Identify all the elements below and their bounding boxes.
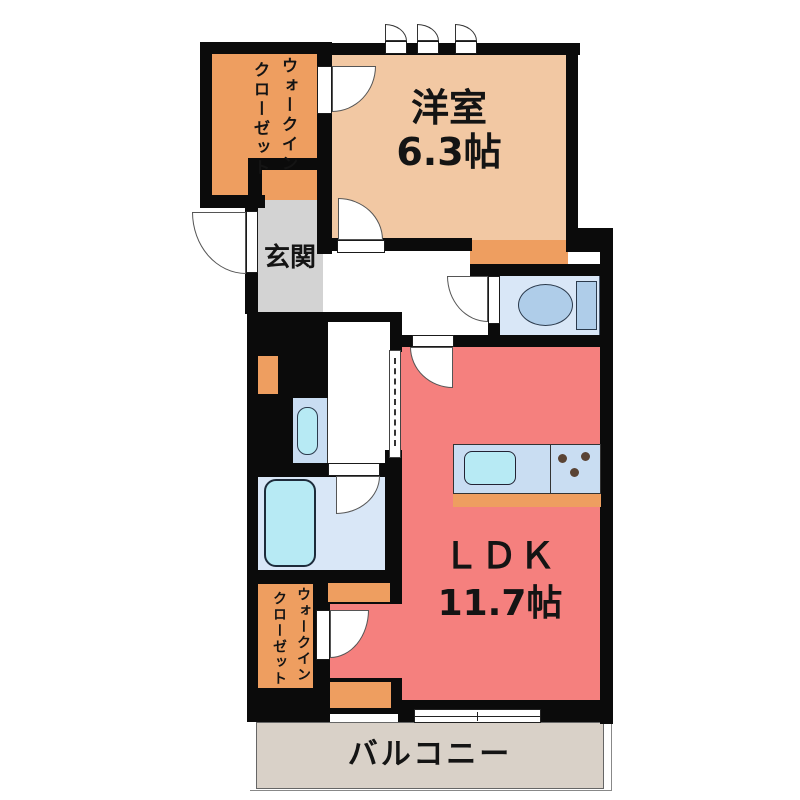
door-leaf xyxy=(488,276,500,324)
stove-burner-icon xyxy=(558,454,567,463)
window-frame xyxy=(417,41,439,54)
wall xyxy=(245,272,258,314)
sliding-door-icon xyxy=(389,350,401,458)
walk-in-closet-bottom-label-col2: クローゼット xyxy=(269,591,289,687)
ldk-closet-strip-lower xyxy=(330,682,391,708)
wall xyxy=(320,43,580,55)
window-frame xyxy=(385,41,407,54)
toilet-tank-icon xyxy=(576,281,597,330)
window-icon xyxy=(385,24,407,41)
wall xyxy=(200,42,212,208)
bathtub-icon xyxy=(264,479,316,567)
wall xyxy=(247,688,330,722)
window-icon xyxy=(417,24,439,41)
walk-in-closet-top-label-col2: クローゼット xyxy=(248,61,272,178)
entrance-label: 玄関 xyxy=(256,243,324,274)
sliding-door-track xyxy=(394,358,396,446)
western-room-label: 洋室 6.3帖 xyxy=(330,86,568,174)
ldk-name: ＬＤＫ xyxy=(400,533,600,580)
balcony-label: バルコニー xyxy=(256,737,604,773)
door-leaf xyxy=(316,610,330,660)
balcony-window-icon xyxy=(414,709,541,723)
window-icon xyxy=(455,24,477,41)
wall xyxy=(600,228,613,724)
floor-plan: ウォークイン クローゼット 洋室 6.3帖 玄関 ＬＤＫ 11.7帖 ウォークイ… xyxy=(0,0,800,800)
stove-burner-icon xyxy=(581,452,590,461)
kitchen-base-strip xyxy=(453,494,601,507)
western-room-closet-strip xyxy=(470,240,568,266)
ldk-label: ＬＤＫ 11.7帖 xyxy=(400,533,600,627)
walk-in-closet-top-label-col1: ウォークイン xyxy=(276,57,300,174)
walk-in-closet-bottom-label-col1: ウォークイン xyxy=(293,587,313,683)
window-frame xyxy=(455,41,477,54)
ldk-size: 11.7帖 xyxy=(400,580,600,627)
kitchen-counter-divider xyxy=(550,445,551,493)
wall xyxy=(247,398,258,722)
entrance-door-swing-icon xyxy=(192,212,246,274)
washbasin-icon xyxy=(297,407,318,455)
stove-burner-icon xyxy=(570,468,579,477)
door-swing-icon xyxy=(447,276,488,322)
western-room-size: 6.3帖 xyxy=(330,130,568,174)
toilet-icon xyxy=(518,284,573,326)
wall xyxy=(200,42,330,54)
door-leaf xyxy=(328,463,380,476)
linen-nook xyxy=(258,356,278,394)
ldk-closet-strip-upper xyxy=(328,583,390,602)
room-ldk xyxy=(400,345,600,708)
kitchen-sink-icon xyxy=(464,451,516,485)
western-room-name: 洋室 xyxy=(330,86,568,130)
door-leaf xyxy=(337,240,385,253)
balcony-window-latch xyxy=(477,712,478,721)
door-leaf xyxy=(412,335,454,347)
